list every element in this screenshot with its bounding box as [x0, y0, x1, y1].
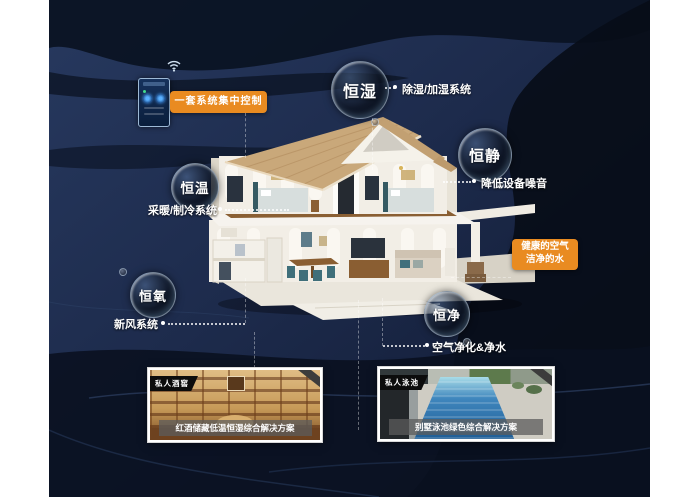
- bullet-dot: [425, 343, 429, 347]
- healthy-air-line2: 洁净的水: [512, 253, 578, 266]
- label-fresh-air-system: 新风系统: [114, 316, 158, 332]
- connector-quiet-label: [443, 181, 471, 183]
- phone-status-dot: [143, 90, 146, 93]
- pool-card-caption: 别墅泳池绿色综合解决方案: [389, 419, 544, 435]
- thermostat-knob-icon: [143, 94, 152, 103]
- pool-card[interactable]: 私人泳池 别墅泳池绿色综合解决方案: [378, 367, 554, 441]
- bullet-dot: [218, 207, 222, 211]
- connector-control-to-house: [245, 113, 246, 158]
- phone-text-row: [144, 113, 164, 115]
- healthy-air-callout: 健康的空气 洁净的水: [512, 239, 578, 270]
- wine-cellar-picture-frame: [227, 376, 245, 391]
- pool-card-tag: 私人泳池: [380, 375, 428, 390]
- bubble-constant-quiet: 恒静: [458, 128, 512, 182]
- central-control-callout: 一套系统集中控制: [170, 91, 267, 113]
- pool-photo: 私人泳池 别墅泳池绿色综合解决方案: [380, 369, 552, 439]
- healthy-air-line1: 健康的空气: [512, 240, 578, 253]
- connector-to-wine-card: [254, 332, 255, 368]
- bubble-constant-oxygen: 恒氧: [130, 272, 176, 318]
- connector-humidity-to-house: [372, 118, 373, 170]
- connector-clean-to-house: [382, 298, 383, 346]
- poolside-plant: [526, 385, 542, 394]
- control-panel-phone: [138, 78, 170, 127]
- label-air-water-purification: 空气净化&净水: [432, 339, 506, 355]
- bubble-constant-clean: 恒净: [424, 291, 470, 337]
- connector-oxygen-label: [168, 323, 245, 325]
- wine-cellar-photo: 私人酒窖 红酒储藏低温恒湿综合解决方案: [150, 370, 320, 440]
- connector-clean-label: [383, 345, 425, 347]
- connector-health-callout: [451, 277, 511, 278]
- infographic-page: 一套系统集中控制 健康的空气 洁净的水 恒湿 恒静 恒温 恒氧 恒净 除湿/加湿…: [0, 0, 700, 497]
- poolside-plant: [512, 382, 524, 389]
- wine-card-caption: 红酒储藏低温恒湿综合解决方案: [159, 420, 312, 436]
- connector-temperature-label: [225, 209, 289, 211]
- dark-canvas: 一套系统集中控制 健康的空气 洁净的水 恒湿 恒静 恒温 恒氧 恒净 除湿/加湿…: [49, 0, 650, 497]
- mini-bubble-icon: [119, 268, 127, 276]
- bullet-dot: [161, 321, 165, 325]
- humidity-knob-icon: [156, 94, 165, 103]
- label-dehumidify-system: 除湿/加湿系统: [402, 81, 471, 97]
- connector-to-pool-card: [358, 300, 359, 430]
- bubble-constant-humidity: 恒湿: [331, 61, 389, 119]
- label-noise-reduction: 降低设备噪音: [481, 175, 547, 191]
- connector-oxygen-to-house: [245, 278, 246, 323]
- phone-header-bar: [143, 82, 165, 86]
- bullet-dot: [472, 179, 476, 183]
- wine-cellar-card[interactable]: 私人酒窖 红酒储藏低温恒湿综合解决方案: [148, 368, 322, 442]
- bullet-dot: [393, 85, 397, 89]
- label-heating-cooling-system: 采暖/制冷系统: [148, 202, 217, 218]
- phone-text-row: [144, 107, 164, 109]
- wine-card-tag: 私人酒窖: [150, 376, 198, 391]
- wifi-icon: [166, 58, 182, 72]
